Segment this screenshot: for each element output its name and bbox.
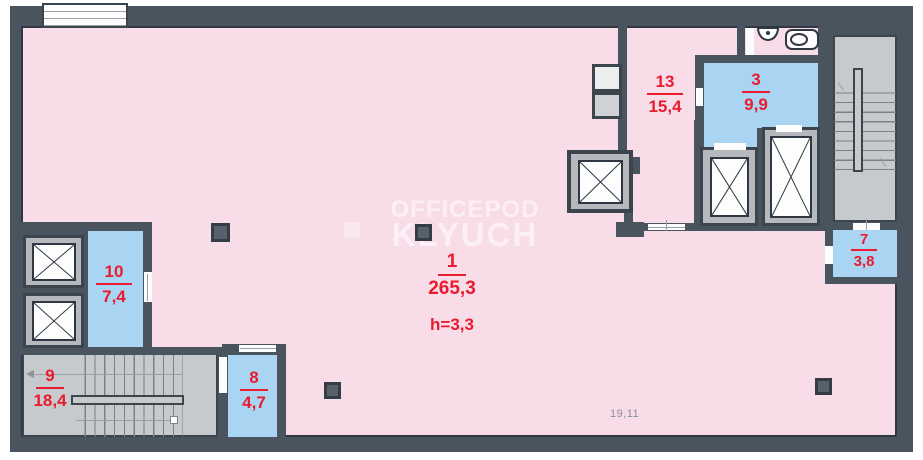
stair-stringer-east: [853, 68, 863, 172]
door-icon: [219, 357, 227, 393]
door-icon: [714, 143, 746, 150]
column-icon: [324, 382, 341, 399]
room-label-1: 1 265,3: [402, 251, 502, 300]
column-icon: [415, 224, 432, 241]
room-area: 3,8: [838, 251, 890, 270]
room-area: 18,4: [20, 389, 80, 411]
column-icon: [815, 378, 832, 395]
room-number: 3: [742, 70, 769, 93]
dimension-note: 19,11: [610, 408, 660, 420]
duct-box: [592, 64, 622, 92]
wall-bath-left: [737, 26, 745, 58]
wall-room3-top: [695, 55, 828, 63]
stair-direction-line: [76, 420, 172, 421]
duct-box: [592, 92, 622, 119]
elevator-icon: [710, 157, 749, 217]
room-number: 13: [647, 72, 684, 95]
door-icon: [144, 272, 152, 302]
elevator-icon: [578, 160, 623, 204]
room-label-8: 8 4,7: [228, 368, 280, 412]
elevator-icon: [32, 301, 76, 341]
wall-room7-bottom: [825, 277, 897, 284]
column-icon: [211, 223, 230, 242]
door-icon: [825, 246, 833, 264]
window-icon: [42, 3, 128, 28]
watermark-line2: KLYUCH: [378, 221, 552, 249]
room-label-10: 10 7,4: [86, 262, 142, 306]
sink-drain: [766, 31, 770, 35]
door-tick: [666, 220, 667, 231]
elevator-icon: [770, 136, 812, 218]
floor-plan: OFFICEPOD KLYUCH 1 265,3 h=3,3 13 15,4 3…: [0, 0, 923, 460]
room-label-3: 3 9,9: [720, 70, 792, 114]
stair-dot: [170, 416, 178, 424]
room-area: 7,4: [86, 285, 142, 307]
watermark-mark: [344, 222, 360, 238]
room-number: 10: [96, 262, 133, 285]
room-area: 4,7: [228, 391, 280, 413]
wall-west-bank-top: [21, 222, 152, 231]
door-leaf-line: [240, 348, 276, 349]
room-number: 1: [438, 251, 467, 276]
elevator-icon: [32, 243, 76, 281]
stairs-icon: [76, 355, 183, 396]
toilet-bowl: [790, 33, 808, 46]
door-leaf-line: [147, 274, 148, 301]
stairs-icon: [834, 84, 896, 170]
room-area: 9,9: [720, 93, 792, 115]
room-label-13: 13 15,4: [629, 72, 701, 116]
watermark: OFFICEPOD KLYUCH: [378, 199, 552, 249]
door-icon: [746, 28, 754, 55]
room-label-9: 9 18,4: [20, 366, 80, 410]
room-area: 15,4: [629, 95, 701, 117]
wall-stairwell-east-top: [818, 26, 897, 35]
room-number: 7: [851, 231, 877, 251]
door-icon: [776, 125, 802, 132]
stair-stringer-west: [71, 395, 184, 405]
room-number: 9: [36, 366, 63, 389]
room-number: 8: [240, 368, 267, 391]
door-tick: [866, 219, 867, 230]
room-label-7: 7 3,8: [838, 231, 890, 271]
room-area: 265,3: [402, 276, 502, 300]
wall-stairwell-east-left: [818, 26, 833, 230]
room-1-height: h=3,3: [402, 315, 502, 335]
